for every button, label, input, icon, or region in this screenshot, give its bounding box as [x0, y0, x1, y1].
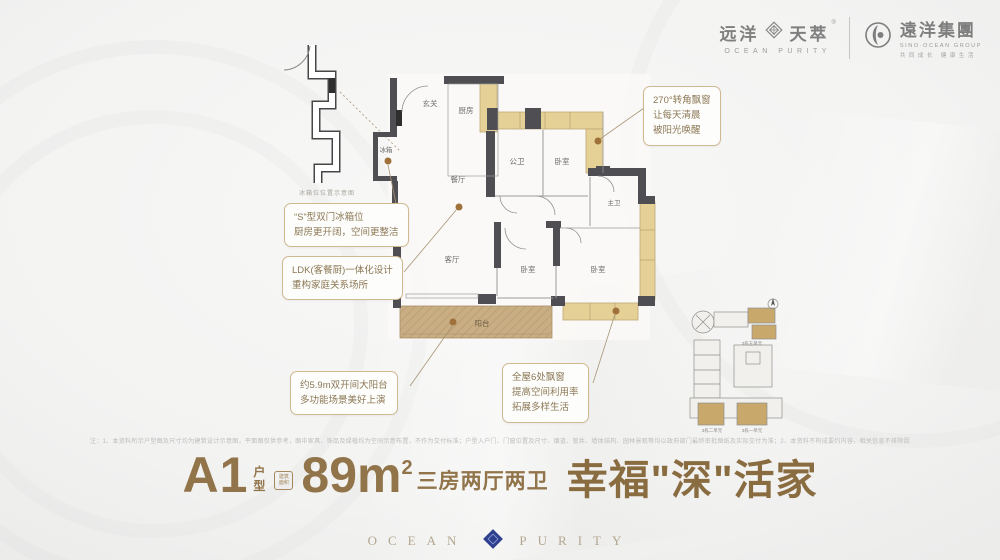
callout-line: 重构家庭关系场所 — [292, 278, 393, 293]
unit-label-char: 型 — [253, 480, 265, 494]
site-plan-map — [690, 298, 782, 425]
callout-line: 270°转角飘窗 — [653, 93, 711, 108]
callout-ldk: LDK(客餐厨)一体化设计 重构家庭关系场所 — [282, 256, 403, 300]
room-label-kitchen: 厨房 — [459, 105, 474, 115]
diamond-watermark-icon — [481, 527, 505, 555]
callout-line: “S”型双门冰箱位 — [294, 210, 399, 225]
callout-fridge: “S”型双门冰箱位 厨房更开阔，空间更整洁 — [284, 203, 409, 247]
area-number: 89 — [301, 447, 357, 503]
room-label-balcony: 阳台 — [475, 318, 490, 328]
area-superscript: 2 — [402, 457, 413, 479]
callout-line: 让每天清晨 — [653, 108, 711, 123]
callout-line: 多功能场景美好上演 — [300, 393, 388, 408]
callout-line: LDK(客餐厨)一体化设计 — [292, 263, 393, 278]
area-badge-line: 面积 — [279, 480, 289, 487]
watermark-left: OCEAN — [368, 533, 468, 549]
site-label-top: 3栋五单元 — [742, 340, 763, 347]
site-label-right: 3栋一单元 — [742, 427, 763, 434]
unit-label-char: 户 — [253, 466, 265, 480]
unit-name: A1 — [182, 452, 248, 500]
fridge-position-note: 冰箱位位置示意图 — [299, 188, 355, 197]
room-label-master-bath: 主卫 — [608, 198, 622, 207]
compass-icon — [768, 298, 778, 309]
headline: A1 户 型 建筑 面积 89m2 三房两厅两卫 幸福"深"活家 — [0, 452, 1000, 500]
room-label-living: 客厅 — [445, 254, 460, 264]
room-label-bedroom-top: 卧室 — [555, 156, 570, 166]
room-label-guest-bath: 公卫 — [510, 157, 525, 166]
callout-line: 全屋6处飘窗 — [512, 370, 579, 385]
callout-line: 约5.9m双开间大阳台 — [300, 378, 388, 393]
callout-line: 拓展多样生活 — [512, 400, 579, 415]
site-label-left: 3栋二单元 — [702, 427, 723, 434]
room-label-bedroom-master: 卧室 — [591, 264, 606, 274]
watermark-right: PURITY — [519, 533, 632, 549]
unit-label: 户 型 — [253, 466, 265, 494]
callout-line: 厨房更开阔，空间更整洁 — [294, 225, 399, 240]
callout-line: 被阳光唤醒 — [653, 123, 711, 138]
poster-canvas: 远洋 天萃 ® OCEAN PURITY — [0, 0, 1000, 560]
area-value: 89m2 — [301, 452, 412, 500]
room-label-dining: 餐厅 — [451, 175, 466, 184]
layout-text: 三房两厅两卫 — [417, 465, 549, 495]
fridge-detail-diagram — [284, 45, 401, 183]
room-label-fridge: 冰箱 — [380, 145, 394, 154]
room-label-foyer: 玄关 — [423, 98, 438, 108]
callout-line: 提高空间利用率 — [512, 385, 579, 400]
callout-balcony: 约5.9m双开间大阳台 多功能场景美好上演 — [290, 371, 398, 415]
area-unit: m — [357, 447, 401, 503]
slogan-text: 幸福"深"活家 — [567, 461, 818, 500]
room-label-bedroom-mid: 卧室 — [521, 264, 536, 274]
disclaimer-text: 注：1、本资料所示户型图及尺寸均为建筑设计示意图，平面图仅供参考，图中家具、饰品… — [90, 436, 910, 445]
footer-watermark: OCEAN PURITY — [0, 527, 1000, 555]
callout-bay-windows: 全屋6处飘窗 提高空间利用率 拓展多样生活 — [502, 363, 589, 423]
area-badge: 建筑 面积 — [274, 471, 293, 490]
callout-corner-bay: 270°转角飘窗 让每天清晨 被阳光唤醒 — [643, 86, 721, 146]
